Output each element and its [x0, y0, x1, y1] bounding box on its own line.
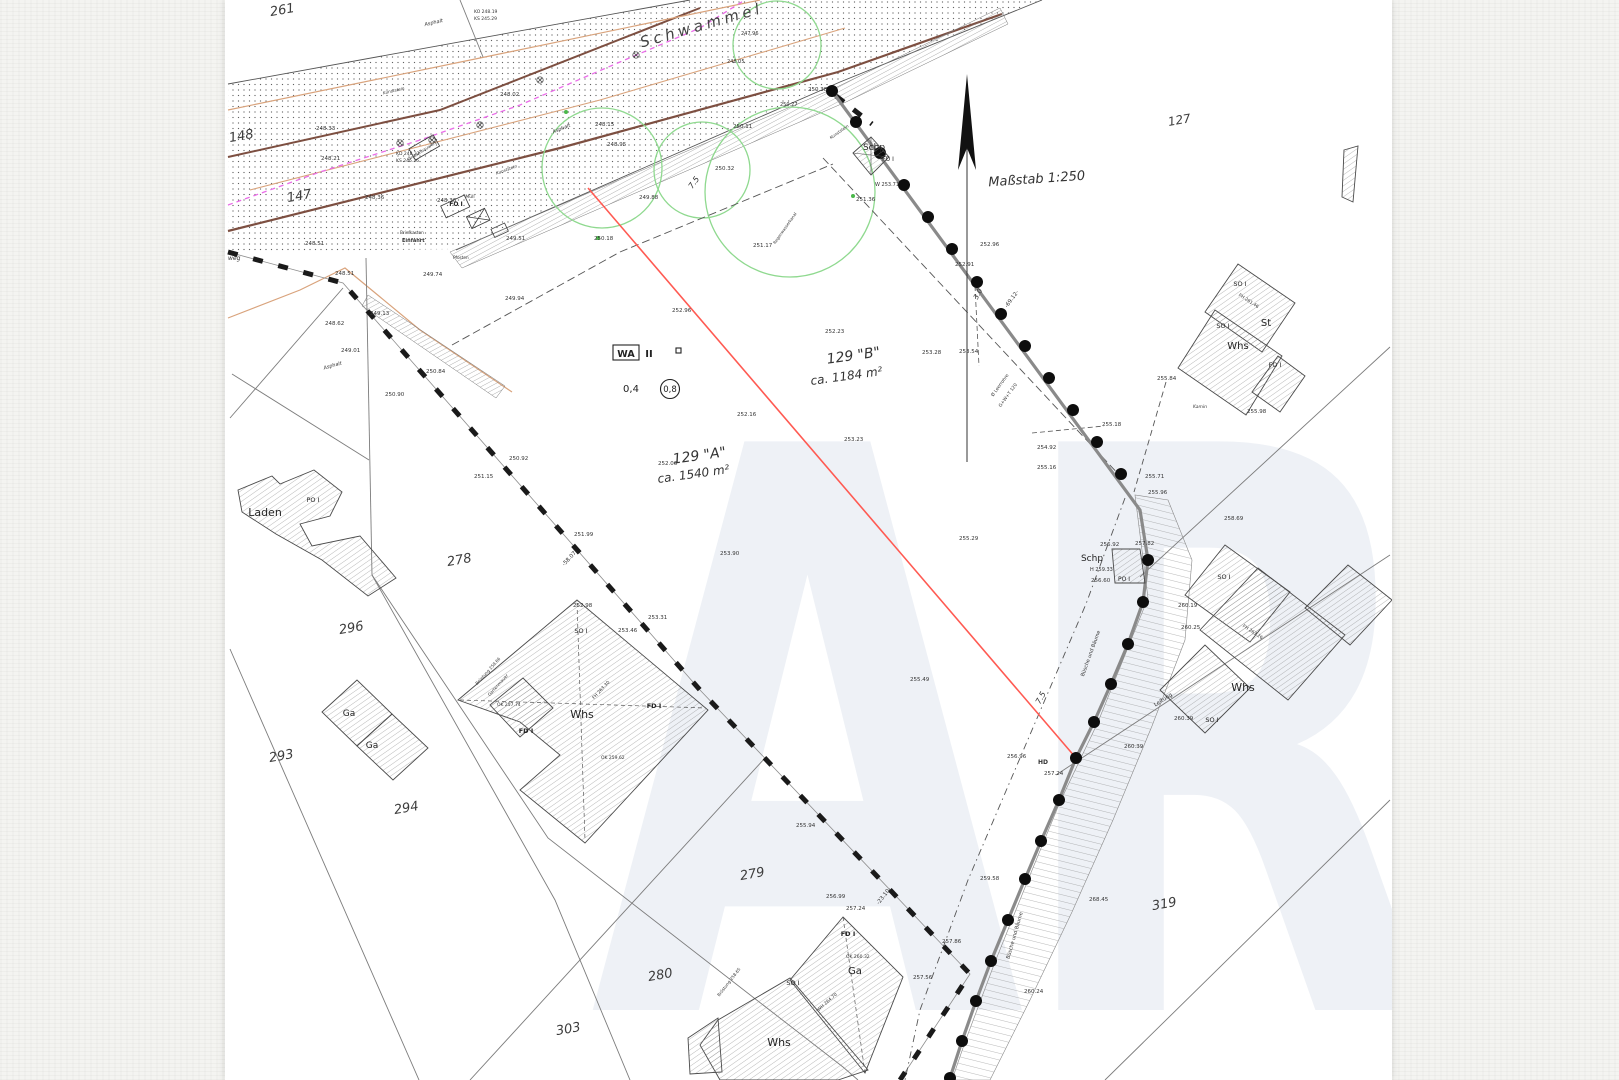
spot-elevation: 268.45: [1089, 897, 1109, 903]
spot-elevation: 255.16: [1037, 465, 1057, 471]
spot-elevation: OK 259.62: [601, 755, 625, 761]
spot-elevation: 252.16: [737, 412, 757, 418]
spot-elevation: 250.32: [715, 166, 734, 172]
spot-elevation: 253.90: [720, 551, 740, 557]
spot-elevation: W 253.71: [875, 182, 899, 188]
spot-elevation: 259.58: [980, 876, 1000, 882]
spot-elevation: 260.24: [1024, 989, 1044, 995]
zoning-gfz: 0,8: [663, 385, 677, 395]
dimension-label: -58.07-: [561, 549, 579, 568]
surface-label: Asphalt: [322, 360, 344, 372]
note-label: Einfahrt: [402, 238, 425, 244]
spot-elevation: 255.71: [1145, 474, 1164, 480]
spot-elevation: 257.24: [1044, 771, 1064, 777]
parcel-number: 293: [268, 747, 295, 766]
spot-elevation: 255.49: [910, 677, 930, 683]
note-label: Briefkasten: [400, 230, 424, 235]
spot-elevation: 248.05: [727, 59, 745, 65]
spot-elevation: 260.39: [1174, 716, 1194, 722]
spot-elevation: 253.23: [844, 437, 864, 443]
spot-elevation: 249.94: [505, 296, 525, 302]
spot-elevation: 248.02: [500, 92, 519, 98]
building-label: Müll: [465, 194, 474, 200]
building-label: Ga: [343, 709, 356, 719]
spot-elevation: KS 245.36: [396, 158, 419, 164]
building-label: Whs: [570, 708, 594, 721]
parcel-number: 261: [269, 1, 296, 20]
spot-elevation: 255.18: [1102, 422, 1122, 428]
note-label: Regenwasserkanal: [772, 211, 798, 244]
spot-elevation: 256.96: [1007, 754, 1027, 760]
spot-elevation: 256.60: [1091, 578, 1111, 584]
building-label: FO I: [882, 156, 894, 163]
spot-elevation: 248.36: [437, 198, 457, 204]
building-label: SO I: [1205, 716, 1218, 724]
spot-elevation: 250.90: [385, 392, 405, 398]
spot-elevation: 248.33: [316, 126, 336, 132]
building-label: SO I: [786, 979, 799, 987]
spot-elevation: OK 257.74: [497, 702, 521, 708]
spot-elevation: 250.84: [426, 369, 446, 375]
building-laden: [238, 470, 396, 596]
spot-elevation: KO 248.19: [474, 9, 498, 15]
building-label: Ga: [366, 741, 379, 751]
building-label: SO I: [574, 627, 587, 635]
parcel-number: 278: [446, 551, 473, 570]
building-label: FD I: [841, 930, 856, 938]
spot-elevation: 252.23: [825, 329, 845, 335]
spot-elevation: 255.84: [1157, 376, 1177, 382]
spot-elevation: 250.27: [780, 102, 798, 108]
building-label: PO I: [1118, 576, 1130, 583]
spot-elevation: KS 245.29: [474, 16, 497, 22]
hatched-triangle: [1342, 146, 1358, 202]
building-label: SO I: [1216, 322, 1229, 330]
surface-label: Kunststein: [829, 123, 850, 140]
zoning-storeys: II: [645, 349, 652, 360]
spot-elevation: 250.18: [594, 236, 614, 242]
spot-elevation: 253.31: [648, 615, 667, 621]
zoning-grz: 0,4: [623, 384, 639, 395]
spot-elevation: 257.24: [846, 906, 866, 912]
note-label: Pfosten: [453, 255, 469, 260]
building-label: FD I: [647, 702, 662, 710]
spot-elevation: OK 260.32: [846, 954, 870, 960]
building-label: Schp: [863, 143, 885, 153]
spot-elevation: 257.86: [942, 939, 962, 945]
spot-elevation: KD 248.23: [396, 151, 420, 157]
note-label: HD: [1038, 759, 1048, 766]
building-label: Whs: [1227, 341, 1248, 352]
building-label: Laden: [248, 506, 282, 519]
spot-elevation: 257.82: [1135, 541, 1154, 547]
building-label: SO I: [1233, 280, 1246, 288]
spot-elevation: 252.98: [573, 603, 593, 609]
parcel-number: 296: [338, 619, 365, 638]
spot-elevation: 260.39: [1124, 744, 1144, 750]
spot-elevation: 249.74: [423, 272, 443, 278]
spot-elevation: 248.15: [595, 122, 615, 128]
zoning-area-type: WA: [617, 349, 635, 360]
spot-elevation: 250.11: [733, 124, 752, 130]
building-label: Whs: [1231, 681, 1255, 694]
spot-elevation: 252.96: [672, 308, 692, 314]
cadastral-map: AR: [0, 0, 1619, 1080]
spot-elevation: 248.51: [305, 241, 324, 247]
building-label: FD I: [519, 727, 534, 735]
spot-elevation: 260.25: [1181, 625, 1201, 631]
spot-elevation: 255.96: [1148, 490, 1168, 496]
spot-elevation: 253.54: [959, 349, 979, 355]
spot-elevation: 256.92: [1100, 542, 1119, 548]
spot-elevation: 252.06: [658, 461, 678, 467]
spot-elevation: 255.29: [959, 536, 979, 542]
scale-label: Maßstab 1:250: [988, 169, 1086, 191]
spot-elevation: 255.98: [1247, 409, 1267, 415]
spot-elevation: 251.99: [574, 532, 594, 538]
building-label: Schp: [1081, 554, 1103, 564]
spot-elevation: 250.38: [808, 87, 828, 93]
spot-elevation: H 259.33: [1090, 567, 1113, 573]
building-label: SO I: [1217, 573, 1230, 581]
spot-elevation: 254.92: [1037, 445, 1056, 451]
spot-elevation: 249.13: [370, 311, 390, 317]
spot-elevation: 249.01: [341, 348, 360, 354]
spot-elevation: 249.88: [639, 195, 659, 201]
spot-elevation: 253.28: [922, 350, 942, 356]
building-label: FO I: [1269, 361, 1282, 369]
spot-elevation: 248.62: [325, 321, 344, 327]
spot-elevation: 248.21: [321, 156, 340, 162]
building-label: Whs: [767, 1036, 791, 1049]
parcel-number: 303: [555, 1020, 582, 1039]
spot-elevation: 260.19: [1178, 603, 1198, 609]
surface-label: Asphalt: [423, 18, 445, 29]
spot-elevation: 255.94: [796, 823, 816, 829]
spot-elevation: 247.96: [741, 31, 759, 37]
spot-elevation: 256.99: [826, 894, 846, 900]
spot-elevation: 252.96: [980, 242, 1000, 248]
spot-elevation: 257.56: [913, 975, 933, 981]
spot-elevation: 258.69: [1224, 516, 1244, 522]
spot-elevation: 251.15: [474, 474, 494, 480]
note-label: Kamin: [1193, 404, 1207, 410]
spot-elevation: 252.91: [955, 262, 974, 268]
spot-elevation: 251.36: [856, 197, 876, 203]
spot-elevation: 248.95: [607, 142, 627, 148]
spot-elevation: 253.46: [618, 628, 638, 634]
building-label: St: [1261, 318, 1271, 329]
spot-elevation: 248.51: [335, 271, 354, 277]
parcel-number: 127: [1167, 111, 1192, 129]
spot-elevation: 248.36: [365, 195, 385, 201]
spot-elevation: 249.51: [506, 236, 525, 242]
parcel-number: 294: [393, 799, 420, 818]
spot-elevation: 251.17: [753, 243, 773, 249]
note-label: weg: [228, 255, 241, 262]
dimension-label: 7.5: [687, 175, 702, 191]
building-label: PO I: [306, 496, 319, 504]
spot-elevation: 250.92: [509, 456, 528, 462]
building-label: Ga: [848, 966, 862, 977]
